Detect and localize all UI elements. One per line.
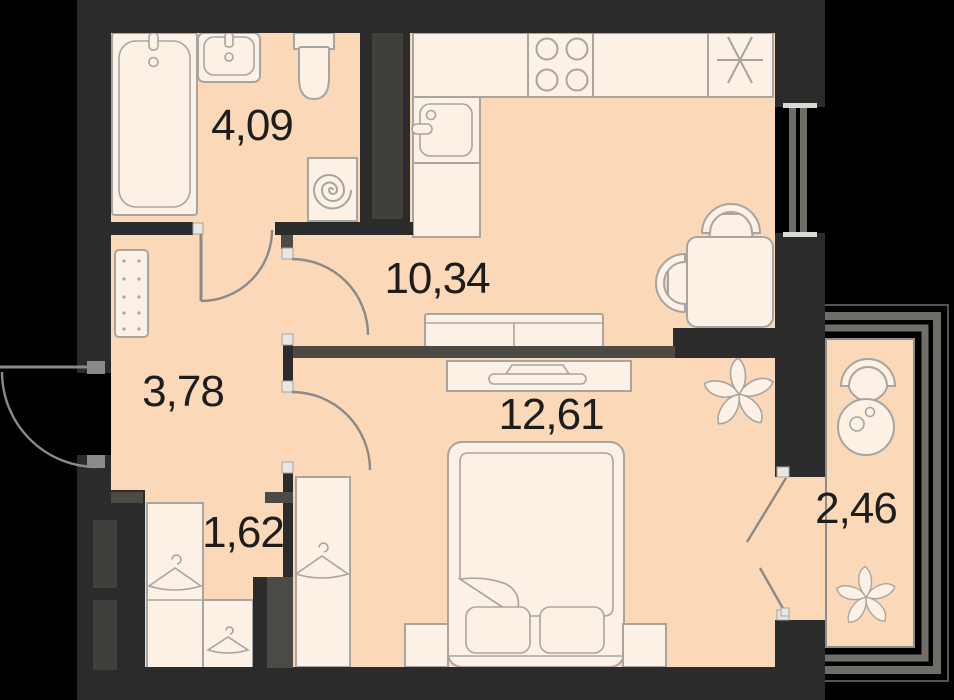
shoe-cabinet-icon bbox=[115, 250, 148, 337]
bathroom-sink-icon bbox=[198, 33, 260, 82]
bathtub-icon bbox=[112, 33, 197, 215]
toilet-icon bbox=[294, 33, 334, 99]
bathroom-area-label: 4,09 bbox=[211, 101, 293, 150]
balcony-area-label: 2,46 bbox=[815, 484, 897, 533]
nightstand-right-icon bbox=[623, 624, 666, 667]
floor-plan-canvas: 4,09 10,34 3,78 12,61 1,62 2,46 bbox=[0, 0, 954, 700]
wardrobe-bedroom-icon bbox=[296, 477, 350, 667]
balcony-table-icon bbox=[838, 399, 894, 455]
kitchen-counter bbox=[413, 33, 773, 97]
washing-machine-icon bbox=[308, 158, 357, 221]
dining-table-icon bbox=[687, 237, 773, 327]
kitchen-sink-icon bbox=[412, 97, 480, 237]
bed-icon bbox=[448, 442, 624, 667]
kitchen-area-label: 10,34 bbox=[384, 254, 490, 303]
floor-plan: 4,09 10,34 3,78 12,61 1,62 2,46 bbox=[0, 0, 954, 700]
kitchen-counter-low bbox=[413, 163, 480, 237]
tv-stand-icon bbox=[447, 361, 631, 391]
pillow-right bbox=[540, 607, 604, 653]
sofa-icon bbox=[425, 314, 603, 347]
hallway-area-label: 3,78 bbox=[142, 367, 224, 416]
wardrobe-area-label: 1,62 bbox=[202, 508, 284, 557]
bedroom-area-label: 12,61 bbox=[498, 390, 603, 439]
pillow-left bbox=[466, 607, 530, 653]
nightstand-left-icon bbox=[405, 624, 448, 667]
